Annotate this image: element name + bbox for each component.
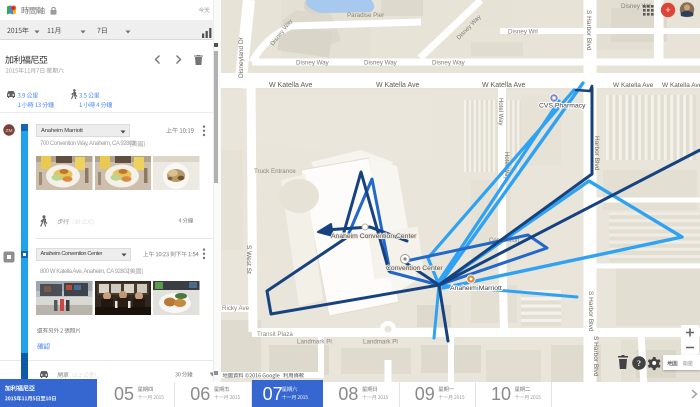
svg-text:S Harbor Blvd: S Harbor Blvd	[587, 291, 594, 332]
svg-text:ZM: ZM	[6, 128, 13, 134]
svg-text:W Katella Ave: W Katella Ave	[613, 82, 654, 89]
svg-text:Disney Wrl: Disney Wrl	[508, 29, 538, 36]
svg-text:Transit Plaza: Transit Plaza	[257, 331, 293, 338]
svg-text:Hotel Way: Hotel Way	[497, 98, 503, 125]
svg-text:Truck Entrance: Truck Entrance	[254, 168, 296, 175]
svg-text:W Katella Ave: W Katella Ave	[269, 82, 313, 89]
svg-text:Disney Way: Disney Way	[432, 60, 466, 67]
svg-text:S West St: S West St	[245, 245, 252, 274]
svg-text:Paradise Pier: Paradise Pier	[347, 12, 384, 19]
svg-text:Anaheim Marriott: Anaheim Marriott	[450, 285, 502, 292]
svg-text:Disney Way: Disney Way	[296, 60, 330, 67]
svg-text:Landmark Pl: Landmark Pl	[297, 339, 332, 346]
svg-text:CVS Pharmacy: CVS Pharmacy	[539, 103, 586, 110]
svg-text:S Harbor Blvd: S Harbor Blvd	[592, 336, 599, 377]
svg-text:S Harbor Blvd: S Harbor Blvd	[585, 10, 592, 51]
svg-text:Disney Way: Disney Way	[364, 60, 398, 67]
svg-text:Disneyland Dr: Disneyland Dr	[238, 36, 245, 78]
svg-text:Harbor Blvd: Harbor Blvd	[593, 136, 600, 171]
svg-text:Ricky Ave: Ricky Ave	[222, 305, 250, 312]
svg-text:W Katella Ave: W Katella Ave	[376, 82, 420, 89]
svg-text:?: ?	[637, 359, 641, 368]
svg-text:Anaheim Convention Center: Anaheim Convention Center	[331, 233, 417, 240]
svg-text:+: +	[665, 5, 670, 15]
svg-text:Landmark Pl: Landmark Pl	[363, 339, 398, 346]
svg-text:Convention Center: Convention Center	[386, 265, 443, 272]
svg-text:W Katella Ave: W Katella Ave	[482, 82, 526, 89]
svg-text:W Katella Ave: W Katella Ave	[662, 82, 700, 89]
